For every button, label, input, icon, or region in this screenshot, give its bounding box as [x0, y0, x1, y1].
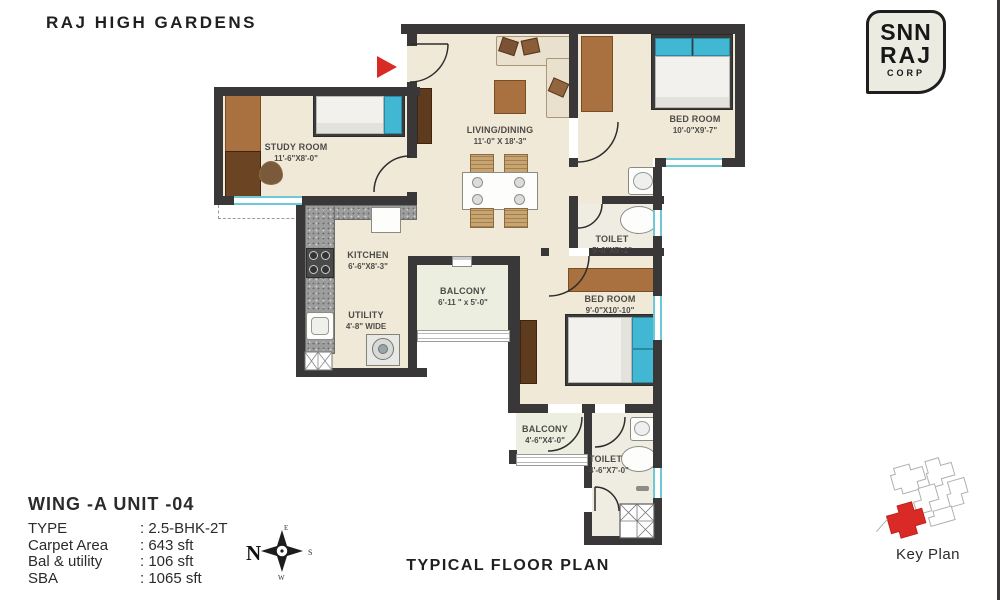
info-label-sba: SBA: [28, 571, 140, 588]
wall-study-bottom-a: [214, 196, 236, 205]
plan-caption: TYPICAL FLOOR PLAN: [378, 557, 638, 575]
label-study-room: STUDY ROOM 11'-6"X8'-0": [246, 142, 346, 164]
unit-info-block: WING -A UNIT -04 TYPE: 2.5-BHK-2T Carpet…: [28, 494, 228, 587]
compass-n: N: [246, 541, 261, 565]
project-title: RAJ HIGH GARDENS: [46, 13, 257, 33]
info-label-type: TYPE: [28, 521, 140, 538]
label-kitchen: KITCHEN 6'-6"X8'-3": [332, 250, 404, 272]
wall-bed2-top-a: [541, 248, 549, 256]
utility-sink-basin: [311, 317, 329, 335]
wall-study-bottom-b: [300, 196, 417, 205]
wall-toilet2-left-b: [584, 512, 592, 542]
kitchen-fridge: [371, 207, 401, 233]
washing-machine: [366, 334, 400, 366]
bed1-double-bed: [651, 34, 733, 110]
label-toilet-2: TOILET 4'-6"X7'-0": [589, 454, 653, 476]
bed2-pillow-2: [632, 349, 655, 383]
floor-study-door-opening: [407, 156, 417, 192]
info-row-bal-utility: Bal & utility: 106 sft: [28, 554, 228, 571]
bed2-pillow-1: [632, 317, 655, 349]
info-row-type: TYPE: 2.5-BHK-2T: [28, 521, 228, 538]
floor-plan-page: RAJ HIGH GARDENS SNN RAJ CORP: [0, 0, 1000, 600]
brand-logo: SNN RAJ CORP: [866, 10, 946, 94]
bed1-mattress: [655, 56, 730, 108]
key-plan-graphic: [862, 450, 994, 544]
window-study: [234, 196, 302, 205]
wall-entry-c: [407, 192, 417, 205]
key-plan-label: Key Plan: [862, 546, 994, 563]
label-balcony-2: BALCONY 4'-6"X4'-0": [510, 424, 580, 446]
label-balcony-1: BALCONY 6'-11 " x 5'-0": [424, 286, 502, 308]
info-label-bal-utility: Bal & utility: [28, 554, 140, 571]
bed1-wardrobe: [581, 36, 613, 112]
bed2-mattress: [568, 317, 632, 383]
toilet2-washbasin-bowl: [634, 421, 650, 436]
dining-plate-4: [514, 194, 525, 205]
kitchen-stove: [306, 248, 334, 278]
wall-balcony1-right: [508, 256, 520, 340]
stove-burner-2: [321, 251, 330, 260]
label-utility: UTILITY 4'-8" WIDE: [330, 310, 402, 332]
wall-top: [401, 24, 745, 34]
wall-toilet2-bottom: [584, 536, 662, 545]
window-toilet2: [653, 468, 662, 498]
wall-balcony1-top-a: [408, 256, 452, 265]
wall-living-bed1-a: [569, 34, 578, 118]
slider-door-balcony1: [452, 256, 472, 267]
dining-chair-4: [504, 208, 528, 228]
info-value-bal-utility: : 106 sft: [140, 553, 193, 570]
stove-burner-3: [309, 265, 318, 274]
wall-entry-a: [407, 24, 417, 46]
dining-chair-2: [504, 154, 528, 174]
washing-machine-drum-inner: [378, 344, 388, 354]
window-bed1: [666, 158, 722, 167]
compass-w: W: [278, 574, 285, 582]
dining-plate-3: [472, 194, 483, 205]
bed1-pillow-2: [693, 38, 730, 56]
compass-e: E: [284, 524, 288, 532]
bed2-wardrobe: [568, 268, 658, 292]
coffee-table: [494, 80, 526, 114]
study-chair: [259, 161, 283, 185]
info-value-sba: : 1065 sft: [140, 570, 202, 587]
dining-plate-1: [472, 177, 483, 188]
lobby-washbasin-bowl: [633, 172, 653, 190]
window-bed2: [653, 296, 662, 340]
tv-unit-living: [417, 88, 432, 144]
wing-unit-title: WING -A UNIT -04: [28, 494, 228, 515]
logo-line1: SNN: [869, 20, 943, 44]
key-plan: Key Plan: [862, 450, 994, 563]
toilet2-tap-icon: [636, 486, 649, 491]
wall-bed2-west-lower: [508, 338, 520, 408]
entrance-arrow-icon: [377, 56, 397, 78]
wall-study-top: [214, 87, 420, 96]
wall-toilet1-left: [569, 196, 578, 248]
wall-kitchen-left: [296, 200, 305, 377]
study-bed-pillow: [384, 96, 402, 134]
info-row-carpet: Carpet Area: 643 sft: [28, 538, 228, 555]
bed2-tv-unit: [520, 320, 537, 384]
label-bed-room-2: BED ROOM 9'-0"X10'-10": [574, 294, 646, 316]
wall-kitchen-right: [408, 258, 417, 377]
wall-living-bed1-b: [569, 158, 578, 167]
label-toilet-1: TOILET 5'-0"X5'-1": [580, 234, 644, 256]
wall-study-left: [214, 87, 223, 205]
stove-burner-4: [321, 265, 330, 274]
dining-chair-1: [470, 154, 494, 174]
info-value-type: : 2.5-BHK-2T: [140, 520, 228, 537]
logo-line3: CORP: [869, 67, 943, 79]
logo-line2: RAJ: [869, 44, 943, 67]
stove-burner-1: [309, 251, 318, 260]
open-ledge-dashed: [218, 205, 304, 219]
bed2-double-bed: [565, 314, 657, 386]
wall-bed2-bottom-a: [508, 404, 548, 413]
info-label-carpet: Carpet Area: [28, 538, 140, 555]
info-row-sba: SBA: 1065 sft: [28, 571, 228, 588]
wall-bed1-right: [735, 24, 745, 167]
railing-balcony1: [417, 330, 510, 342]
railing-balcony2: [516, 454, 588, 466]
compass-s: S: [308, 548, 312, 557]
study-bed-mattress: [316, 96, 384, 134]
compass-icon: N E S W: [240, 522, 320, 582]
floor-lobby-opening: [569, 167, 578, 196]
label-living-dining: LIVING/DINING 11'-0" X 18'-3": [448, 125, 552, 147]
window-toilet1: [653, 210, 662, 236]
label-bed-room-1: BED ROOM 10'-0"X9'-7": [650, 114, 740, 136]
dining-chair-3: [470, 208, 494, 228]
wall-entry-b: [407, 82, 417, 158]
study-single-bed: [313, 93, 405, 137]
dining-plate-2: [514, 177, 525, 188]
floor-entry-opening: [407, 46, 417, 82]
info-value-carpet: : 643 sft: [140, 537, 193, 554]
bed1-pillow-1: [655, 38, 692, 56]
